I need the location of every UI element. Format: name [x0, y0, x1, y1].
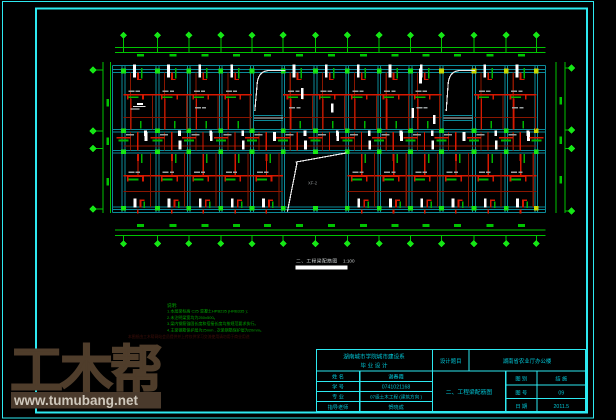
svg-text:湖南城市学院城市建设系: 湖南城市学院城市建设系: [343, 353, 405, 361]
svg-text:贺晓成: 贺晓成: [388, 403, 404, 411]
svg-text:日 期: 日 期: [515, 403, 527, 410]
svg-text:图 号: 图 号: [515, 390, 527, 397]
svg-text:0741021168: 0741021168: [382, 385, 411, 391]
svg-text:2.未注明梁宽均为250x500。: 2.未注明梁宽均为250x500。: [167, 314, 218, 320]
svg-text:www.tumubang.net: www.tumubang.net: [13, 393, 138, 408]
svg-text:毕 业 设 计: 毕 业 设 计: [360, 362, 387, 370]
svg-text:二、工程梁配筋图: 二、工程梁配筋图: [296, 257, 338, 264]
svg-text:湖南省农业厅办公楼: 湖南省农业厅办公楼: [503, 357, 552, 365]
svg-text:09: 09: [558, 391, 564, 397]
svg-text:1:100: 1:100: [343, 258, 355, 263]
svg-text:学 号: 学 号: [332, 383, 344, 391]
svg-text:4.主梁钢筋保护层为25mm , 次梁钢筋保护层为20mm: 4.主梁钢筋保护层为25mm , 次梁钢筋保护层为20mm。: [167, 327, 264, 333]
svg-text:1.本层梁标高 C25 混凝土HPB235 (HRB335: 1.本层梁标高 C25 混凝土HPB235 (HRB335 );: [167, 308, 248, 314]
svg-text:设计题目: 设计题目: [440, 357, 462, 365]
svg-text:工木帮: 工木帮: [10, 342, 161, 401]
svg-text:二、工程梁配筋图: 二、工程梁配筋图: [446, 388, 493, 396]
svg-text:XF-2: XF-2: [308, 181, 318, 186]
svg-text:谢春霞: 谢春霞: [388, 373, 404, 381]
svg-text:指导老师: 指导老师: [328, 403, 349, 411]
svg-text:专 业: 专 业: [332, 393, 344, 401]
svg-text:2011.5: 2011.5: [554, 404, 570, 410]
svg-text:3.梁内钢筋锚固长度和搭接长度均按规范要求执行。: 3.梁内钢筋锚固长度和搭接长度均按规范要求执行。: [167, 320, 258, 326]
svg-text:本图纸由工木帮网站会员提供并上传仅供学习交流使用请勿用于商业: 本图纸由工木帮网站会员提供并上传仅供学习交流使用请勿用于商业用途: [128, 334, 250, 339]
svg-text:图 别: 图 别: [515, 375, 527, 383]
svg-text:姓 名: 姓 名: [332, 373, 344, 381]
svg-text:结 施: 结 施: [555, 375, 567, 383]
svg-text:07级土木工程 (建筑方向 ): 07级土木工程 (建筑方向 ): [370, 394, 423, 401]
